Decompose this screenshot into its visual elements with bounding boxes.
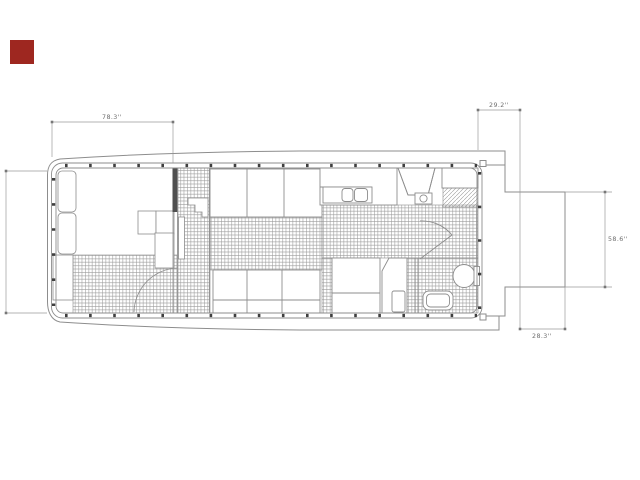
aft-corridor-hatch-left <box>322 258 332 313</box>
partition-wall-segment <box>173 168 178 212</box>
toilet <box>453 265 475 288</box>
sink-basin-left <box>342 189 353 202</box>
floor-plan-canvas: 78.3'' 29.2'' 58.6'' 28.3'' <box>0 0 640 480</box>
stern-step-top <box>480 161 486 167</box>
bow-berth-cushion-bottom <box>58 213 76 254</box>
desk-unit-lower <box>155 233 174 268</box>
dimension-left-height <box>5 170 47 315</box>
desk-unit-right <box>156 211 174 234</box>
aft-bed <box>332 258 380 313</box>
pocket-door-panel <box>179 217 185 259</box>
stern-step-bottom <box>480 314 486 320</box>
dinette-bottom-row <box>213 270 320 313</box>
dimension-label-bow-room-width: 78.3'' <box>102 114 122 121</box>
aft-cabin <box>332 258 418 313</box>
bathtub-inner <box>427 294 450 307</box>
dimension-label-extension-height: 58.6'' <box>608 236 628 243</box>
dimension-extension-width: 28.3'' <box>519 287 567 340</box>
dinette-top-row <box>210 169 322 217</box>
red-square-marker <box>10 40 34 64</box>
desk-unit-left <box>138 211 156 234</box>
saloon-floor-hatch <box>210 217 322 270</box>
sink-basin-right <box>355 189 368 202</box>
counter-diagonal-hatch <box>443 188 478 207</box>
fridge-cabinet <box>442 168 478 188</box>
shower-seat <box>392 291 405 312</box>
bow-berth-cushion-top <box>58 171 76 212</box>
galley-floor-hatch <box>322 205 478 258</box>
dimension-stern-deck-width: 29.2'' <box>477 102 522 329</box>
dimension-label-extension-width: 28.3'' <box>532 333 552 340</box>
dimension-extension-height: 58.6'' <box>565 191 628 289</box>
floor-plan-drawing: 78.3'' 29.2'' 58.6'' 28.3'' <box>0 0 640 480</box>
dimension-label-stern-deck-width: 29.2'' <box>489 102 509 109</box>
